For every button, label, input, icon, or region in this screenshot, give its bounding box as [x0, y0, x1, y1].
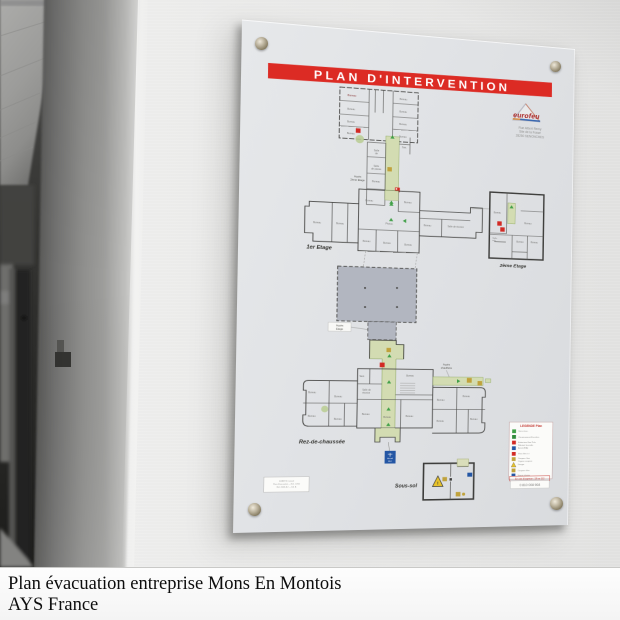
svg-text:Bureau: Bureau	[383, 242, 391, 245]
svg-text:2ème Etage: 2ème Etage	[350, 178, 365, 182]
svg-text:Bureau: Bureau	[308, 415, 316, 418]
svg-text:Bureau: Bureau	[437, 399, 445, 402]
svg-text:Bureau: Bureau	[336, 222, 344, 225]
svg-text:chaufferie: chaufferie	[441, 366, 453, 370]
svg-text:Coupure élec.: Coupure élec.	[518, 469, 531, 472]
svg-text:Bureau: Bureau	[347, 120, 355, 123]
svg-text:Bureau: Bureau	[404, 201, 412, 204]
svg-text:Salle de réunion: Salle de réunion	[448, 225, 465, 228]
svg-text:Bureau: Bureau	[347, 132, 355, 135]
svg-text:Etage: Etage	[336, 327, 344, 331]
svg-text:PLAN D'INTERVENTION: PLAN D'INTERVENTION	[314, 67, 510, 94]
svg-text:Bureau: Bureau	[470, 418, 478, 421]
svg-text:Photoc.: Photoc.	[385, 223, 393, 226]
svg-text:Bureau: Bureau	[348, 93, 357, 97]
svg-text:Bureau: Bureau	[365, 199, 373, 202]
svg-text:Bureau: Bureau	[362, 413, 370, 416]
svg-text:Bureau: Bureau	[463, 395, 471, 398]
svg-text:Danger: Danger	[518, 463, 525, 466]
svg-text:Bureau: Bureau	[313, 221, 321, 224]
svg-text:0 810 008 908: 0 810 008 908	[519, 483, 540, 487]
svg-text:Accueil: Accueil	[387, 457, 393, 460]
svg-text:Extincteur Eau Pulv.: Extincteur Eau Pulv.	[518, 441, 536, 444]
svg-text:Rez-de-chaussée: Rez-de-chaussée	[299, 440, 346, 446]
svg-text:Bureau: Bureau	[406, 375, 414, 378]
svg-text:Bureau: Bureau	[347, 108, 355, 111]
svg-text:Bureau: Bureau	[334, 418, 342, 421]
svg-text:Sani.: Sani.	[359, 375, 365, 378]
svg-text:Vous êtes ici: Vous êtes ici	[518, 452, 530, 455]
svg-text:Bureau: Bureau	[400, 98, 408, 101]
svg-text:Bureau: Bureau	[372, 179, 380, 183]
svg-text:Bureau: Bureau	[399, 123, 407, 126]
svg-text:2ème Etage: 2ème Etage	[499, 263, 527, 269]
svg-text:Bureau: Bureau	[383, 416, 391, 419]
svg-text:Bureau: Bureau	[494, 212, 502, 215]
svg-text:Sous-sol: Sous-sol	[395, 484, 418, 490]
svg-text:Bureau: Bureau	[516, 241, 524, 244]
svg-text:Robinet Incendie: Robinet Incendie	[518, 444, 534, 447]
svg-text:Sens évac.: Sens évac.	[518, 431, 528, 433]
svg-text:28250 SENONCHES: 28250 SENONCHES	[516, 134, 545, 139]
svg-text:Bureau: Bureau	[424, 224, 432, 227]
svg-text:Bureau: Bureau	[399, 111, 407, 114]
svg-text:Bureau: Bureau	[437, 420, 445, 423]
svg-text:Coupure Gaz: Coupure Gaz	[518, 457, 531, 460]
svg-text:RDC: RDC	[388, 461, 392, 463]
svg-text:Bureau: Bureau	[404, 244, 412, 247]
svg-text:Cheminement Escaliers: Cheminement Escaliers	[518, 436, 540, 439]
svg-text:Bureau: Bureau	[531, 241, 539, 244]
svg-text:Bureau: Bureau	[406, 415, 414, 418]
svg-text:Bureau: Bureau	[363, 240, 371, 243]
svg-text:Bureau: Bureau	[334, 395, 342, 398]
svg-text:de pause: de pause	[371, 167, 382, 171]
svg-text:Réf. 2008-112 — Ind. A: Réf. 2008-112 — Ind. A	[277, 486, 297, 489]
svg-text:San.: San.	[402, 145, 407, 149]
svg-text:1er Etage: 1er Etage	[306, 245, 332, 252]
svg-text:LEGENDE Plan: LEGENDE Plan	[520, 424, 542, 428]
svg-text:En cas d'urgence : 18 ou 112: En cas d'urgence : 18 ou 112	[515, 477, 545, 481]
svg-text:Organe coupure: Organe coupure	[518, 460, 533, 463]
svg-text:Bureau: Bureau	[308, 391, 316, 394]
svg-text:SURETIS Conseil: SURETIS Conseil	[279, 481, 295, 483]
svg-text:Bureau: Bureau	[524, 222, 532, 225]
svg-text:réunion: réunion	[362, 392, 370, 395]
svg-text:Bureau: Bureau	[399, 136, 407, 139]
svg-text:Armé (RIA): Armé (RIA)	[518, 447, 528, 450]
svg-text:Plan d'évacuation — Ech. 1/250: Plan d'évacuation — Ech. 1/250	[273, 483, 300, 486]
